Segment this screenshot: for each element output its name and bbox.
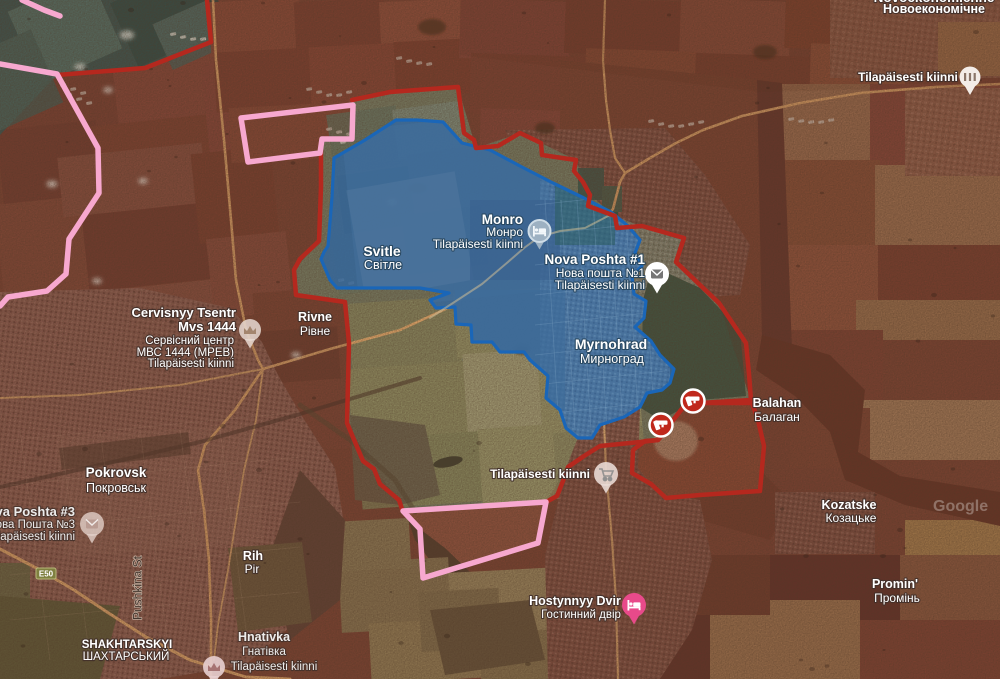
- svg-text:Покровськ: Покровськ: [86, 481, 147, 495]
- svg-text:Kozatske: Kozatske: [822, 498, 877, 512]
- svg-text:Nova Poshta #3: Nova Poshta #3: [0, 504, 75, 519]
- svg-text:Pir: Pir: [245, 562, 260, 576]
- svg-text:Сервісний центр: Сервісний центр: [145, 335, 234, 347]
- svg-text:Tilapäisesti kiinni: Tilapäisesti kiinni: [858, 70, 958, 84]
- svg-text:Tilapäisesti kiinni: Tilapäisesti kiinni: [555, 278, 645, 292]
- svg-text:Рівне: Рівне: [300, 324, 331, 338]
- svg-text:Hnativka: Hnativka: [238, 630, 291, 644]
- svg-text:Гнатівка: Гнатівка: [242, 646, 286, 658]
- svg-text:Нова Пошта №3: Нова Пошта №3: [0, 519, 75, 531]
- svg-text:Промінь: Промінь: [874, 591, 920, 605]
- svg-text:Світле: Світле: [364, 258, 402, 272]
- svg-text:Svitle: Svitle: [363, 243, 401, 259]
- svg-text:Pokrovsk: Pokrovsk: [86, 465, 147, 480]
- svg-text:E50: E50: [39, 570, 54, 579]
- svg-text:Nova Poshta #1: Nova Poshta #1: [544, 252, 645, 267]
- svg-text:Новоекономічне: Новоекономічне: [883, 2, 985, 16]
- svg-text:Tilapäisesti kiinni: Tilapäisesti kiinni: [0, 531, 75, 543]
- svg-text:Rih: Rih: [243, 549, 263, 563]
- svg-text:ШАХТАРСЬКИЙ: ШАХТАРСЬКИЙ: [83, 650, 170, 663]
- svg-text:Promin': Promin': [872, 577, 918, 591]
- svg-text:Mvs 1444: Mvs 1444: [178, 319, 237, 334]
- svg-text:Tilapäisesti kiinni: Tilapäisesti kiinni: [490, 467, 590, 481]
- svg-text:Balahan: Balahan: [753, 396, 802, 410]
- svg-text:Tilapäisesti kiinni: Tilapäisesti kiinni: [148, 358, 235, 370]
- svg-text:Pushkina St: Pushkina St: [131, 555, 145, 620]
- svg-text:SHAKHTARSKYI: SHAKHTARSKYI: [82, 639, 173, 651]
- svg-text:Cervisnyy Tsentr: Cervisnyy Tsentr: [131, 305, 236, 320]
- svg-text:Hostynnyy Dvir: Hostynnyy Dvir: [529, 594, 621, 608]
- svg-text:Tilapäisesti kiinni: Tilapäisesti kiinni: [433, 237, 523, 251]
- svg-text:Козацьке: Козацьке: [826, 511, 877, 525]
- svg-text:Балаган: Балаган: [754, 410, 800, 424]
- svg-text:Google: Google: [933, 498, 988, 515]
- svg-text:Гостинний двір: Гостинний двір: [541, 609, 621, 621]
- svg-text:Tilapäisesti kiinni: Tilapäisesti kiinni: [231, 661, 318, 673]
- svg-text:Мирноград: Мирноград: [580, 352, 645, 366]
- svg-text:Rivne: Rivne: [298, 310, 332, 324]
- svg-text:Myrnohrad: Myrnohrad: [575, 336, 647, 352]
